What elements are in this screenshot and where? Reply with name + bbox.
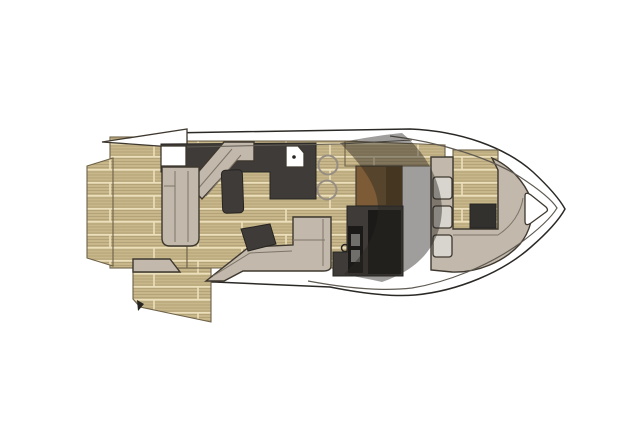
lower-swim-platform — [133, 268, 211, 322]
bar-stool-1 — [319, 156, 338, 175]
faucet-dot — [292, 155, 296, 159]
deck-plan-svg — [0, 0, 637, 425]
cockpit-sunpad — [221, 170, 243, 214]
bar-stool-2 — [318, 181, 337, 200]
bow-seat-cushion-3 — [433, 235, 452, 257]
cockpit-settee — [162, 167, 199, 246]
swim-platform-extension — [87, 158, 113, 266]
yacht-deck-plan — [0, 0, 637, 425]
bow-table — [470, 204, 496, 228]
console-slot-1 — [351, 234, 360, 246]
transom-hatch — [161, 146, 186, 166]
